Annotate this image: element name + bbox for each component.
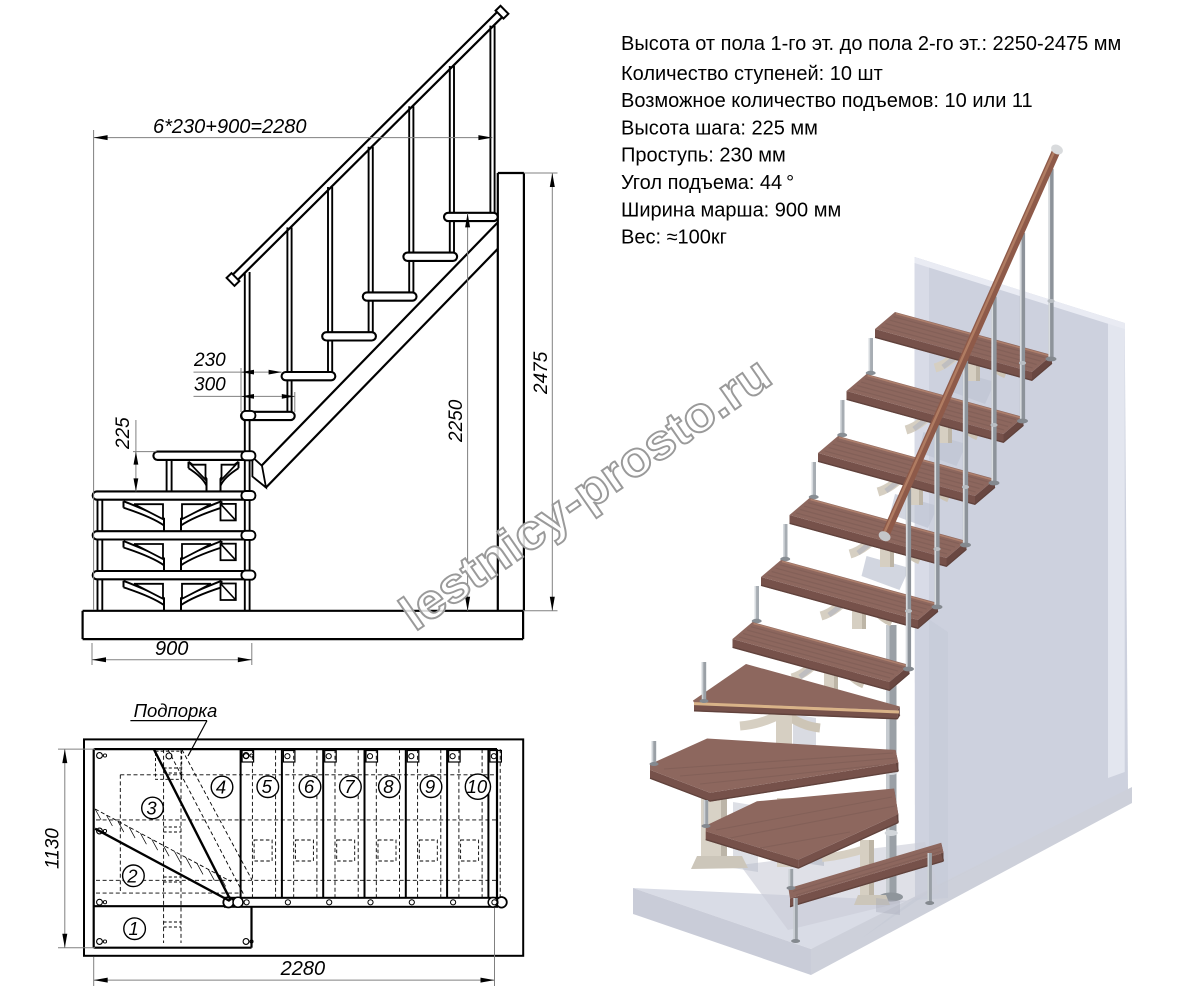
svg-text:6: 6	[304, 776, 315, 797]
svg-text:Подпорка: Подпорка	[134, 700, 218, 721]
svg-text:10: 10	[467, 776, 488, 797]
svg-text:9: 9	[425, 776, 435, 797]
svg-text:3: 3	[146, 798, 157, 819]
svg-text:2280: 2280	[280, 958, 326, 980]
svg-text:1130: 1130	[43, 828, 64, 869]
svg-text:Высота шага: 225 мм: Высота шага: 225 мм	[621, 117, 818, 139]
svg-text:Угол подъема: 44 °: Угол подъема: 44 °	[621, 172, 794, 194]
svg-text:1: 1	[128, 918, 138, 939]
svg-text:Высота от пола 1-го эт. до пол: Высота от пола 1-го эт. до пола 2-го эт.…	[621, 33, 1121, 55]
svg-text:4: 4	[216, 777, 226, 798]
svg-text:900: 900	[155, 638, 188, 660]
svg-text:Вес: ≈100кг: Вес: ≈100кг	[621, 227, 727, 249]
svg-text:Ширина марша: 900 мм: Ширина марша: 900 мм	[621, 199, 841, 221]
svg-text:Возможное количество подъемов:: Возможное количество подъемов: 10 или 11	[621, 90, 1033, 112]
svg-text:Количество ступеней: 10 шт: Количество ступеней: 10 шт	[621, 63, 883, 85]
svg-text:6*230+900=2280: 6*230+900=2280	[153, 116, 307, 138]
svg-text:225: 225	[113, 417, 134, 450]
svg-text:2: 2	[126, 865, 138, 886]
svg-text:2475: 2475	[531, 351, 552, 395]
svg-text:2250: 2250	[446, 399, 467, 443]
svg-text:5: 5	[262, 776, 273, 797]
svg-text:Проступь: 230 мм: Проступь: 230 мм	[621, 145, 786, 167]
svg-text:230: 230	[193, 350, 226, 371]
svg-text:300: 300	[194, 375, 226, 396]
svg-text:8: 8	[383, 776, 394, 797]
svg-text:7: 7	[344, 776, 355, 797]
